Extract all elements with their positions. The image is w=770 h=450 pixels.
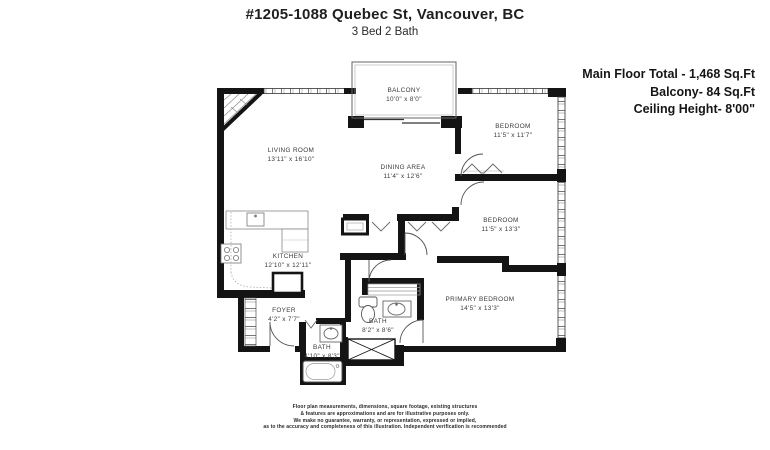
- room-label-kitchen: KITCHEN 12'10" x 12'11": [243, 252, 333, 270]
- hall-door-arc: [405, 233, 427, 255]
- floorplan-drawing: [0, 0, 770, 450]
- sink-icon: [320, 325, 342, 342]
- primary-closet: [368, 284, 420, 295]
- disclaimer-line: & features are approximations and are fo…: [0, 411, 770, 418]
- room-label-foyer: FOYER 4'2" x 7'7": [249, 306, 319, 324]
- disclaimer-line: as to the accuracy and completeness of t…: [0, 424, 770, 431]
- kitchen-sink-icon: [247, 213, 264, 226]
- room-label-bath-main: BATH 8'2" x 8'6": [348, 317, 408, 335]
- room-label-dining: DINING AREA 11'4" x 12'6": [358, 163, 448, 181]
- room-label-bedroom2: BEDROOM 11'5" x 13'3": [456, 216, 546, 234]
- window-wall: [558, 97, 565, 338]
- kitchen-island: [273, 273, 302, 293]
- hall-pantry: [343, 219, 368, 234]
- stove-icon: [221, 244, 241, 263]
- disclaimer: Floor plan measurements, dimensions, squ…: [0, 404, 770, 431]
- washer-dryer-icon: [348, 339, 395, 360]
- bedroom1-closet: [461, 164, 504, 173]
- angled-corner-hatch: [222, 93, 261, 130]
- room-label-primary: PRIMARY BEDROOM 14'5" x 13'3": [425, 295, 535, 313]
- entry-door-arc: [270, 322, 294, 346]
- room-label-bath-ensuite: BATH 4'10" x 8'3": [292, 343, 352, 361]
- bathtub-icon: [303, 361, 342, 382]
- hall-closet-doors: [372, 222, 450, 231]
- room-label-bedroom1: BEDROOM 11'5" x 11'7": [468, 122, 558, 140]
- bedroom2-door-arc: [461, 182, 484, 205]
- room-label-living: LIVING ROOM 13'11" x 16'10": [246, 146, 336, 164]
- disclaimer-line: Floor plan measurements, dimensions, squ…: [0, 404, 770, 411]
- window: [264, 89, 346, 94]
- bedroom1-door-arc: [461, 154, 483, 176]
- bedroom-walls: [340, 120, 566, 272]
- disclaimer-line: We make no guarantee, warranty, or repre…: [0, 418, 770, 425]
- window: [472, 89, 548, 94]
- sink-icon: [383, 301, 411, 317]
- room-label-balcony: BALCONY 10'0" x 8'0": [359, 86, 449, 104]
